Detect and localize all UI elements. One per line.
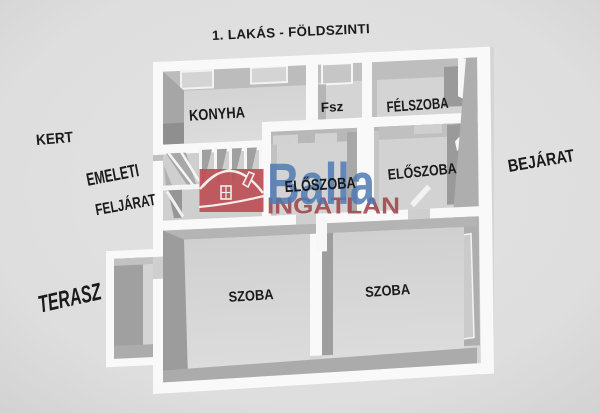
svg-text:KONYHA: KONYHA [189, 104, 246, 124]
svg-text:KERT: KERT [35, 129, 73, 149]
svg-text:SZOBA: SZOBA [365, 282, 411, 301]
svg-text:Fsz: Fsz [320, 99, 343, 115]
svg-text:SZOBA: SZOBA [228, 287, 274, 306]
